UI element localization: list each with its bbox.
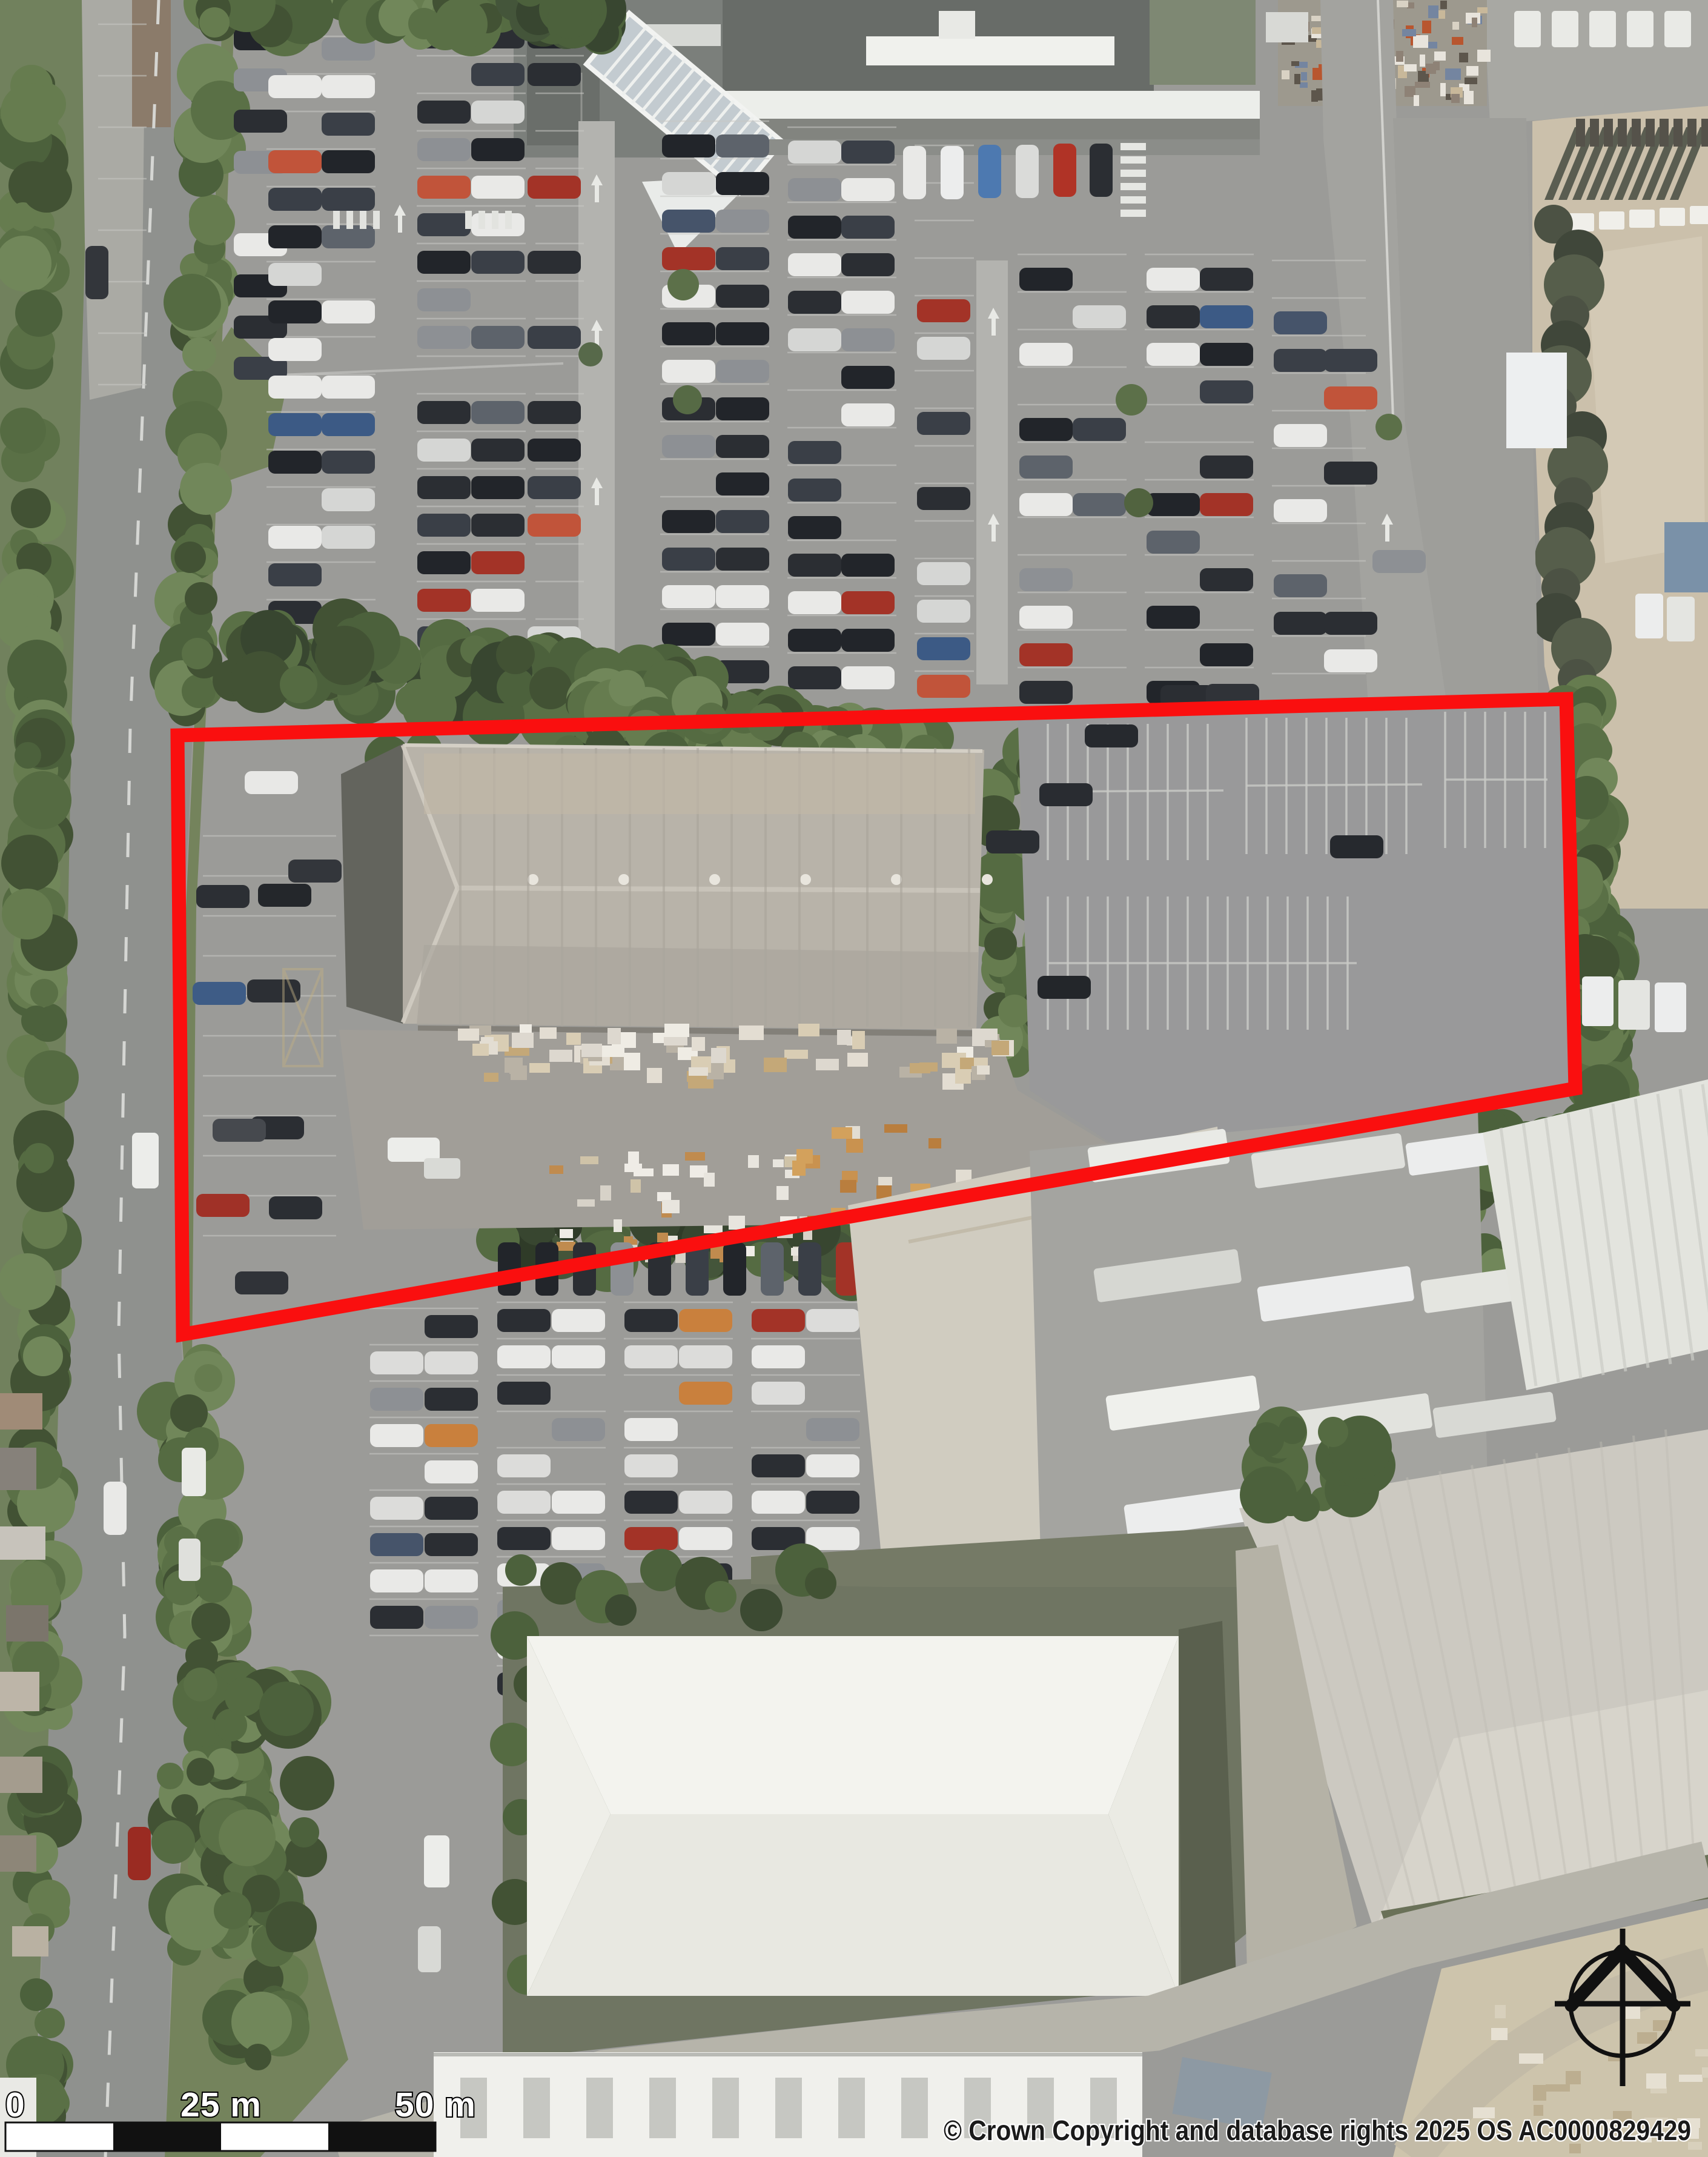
svg-text:0: 0 [5,2086,25,2124]
svg-text:© Crown Copyright and database: © Crown Copyright and database rights 20… [944,2115,1691,2146]
svg-text:50 m: 50 m [395,2086,476,2124]
svg-text:25 m: 25 m [180,2086,262,2124]
